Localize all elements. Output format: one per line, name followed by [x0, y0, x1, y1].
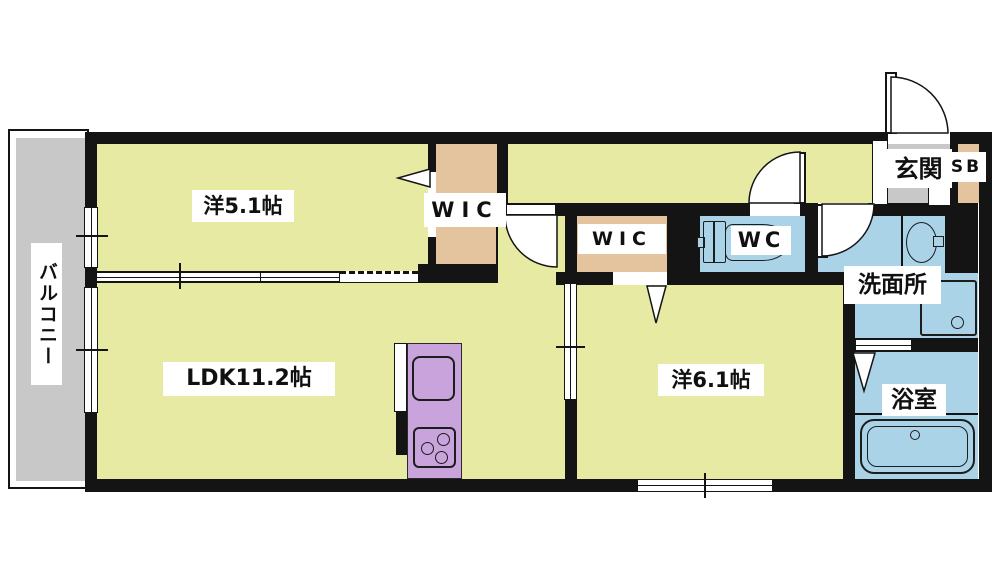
- window-tick-1: [76, 235, 108, 237]
- entrance-door-swing: [891, 77, 948, 133]
- wic1-opening-marker: [398, 169, 430, 187]
- wc-door-swing: [749, 152, 800, 203]
- wic2-opening-marker: [647, 286, 666, 323]
- window-tick-2: [76, 349, 108, 351]
- floor-plan: バルコニー 洋5.1帖 WIC 玄関 SB WIC WC 洗面所 浴室 LDK1…: [0, 0, 1000, 562]
- vanity-divider: [901, 216, 903, 268]
- bedroom2-label: 洋6.1帖: [658, 364, 764, 396]
- slider-tick: [179, 263, 181, 289]
- wc-label: WC: [731, 226, 791, 255]
- bedroom2-window-tick: [704, 473, 706, 498]
- bathroom-label: 浴室: [882, 384, 946, 416]
- entrance-label: 玄関: [885, 149, 952, 188]
- bathroom-door-marker: [853, 353, 875, 391]
- balcony-label: バルコニー: [31, 243, 62, 385]
- washroom-door-swing: [822, 204, 874, 256]
- shoebox-label: SB: [947, 152, 986, 182]
- ldk-door-swing: [505, 215, 557, 267]
- ldk-label: LDK11.2帖: [163, 362, 335, 396]
- wic1-label: WIC: [424, 193, 506, 227]
- bedroom1-label: 洋5.1帖: [192, 190, 294, 222]
- wic2-label: WIC: [578, 224, 666, 254]
- washroom-label: 洗面所: [844, 266, 941, 304]
- ldk-bed2-tick: [556, 346, 585, 348]
